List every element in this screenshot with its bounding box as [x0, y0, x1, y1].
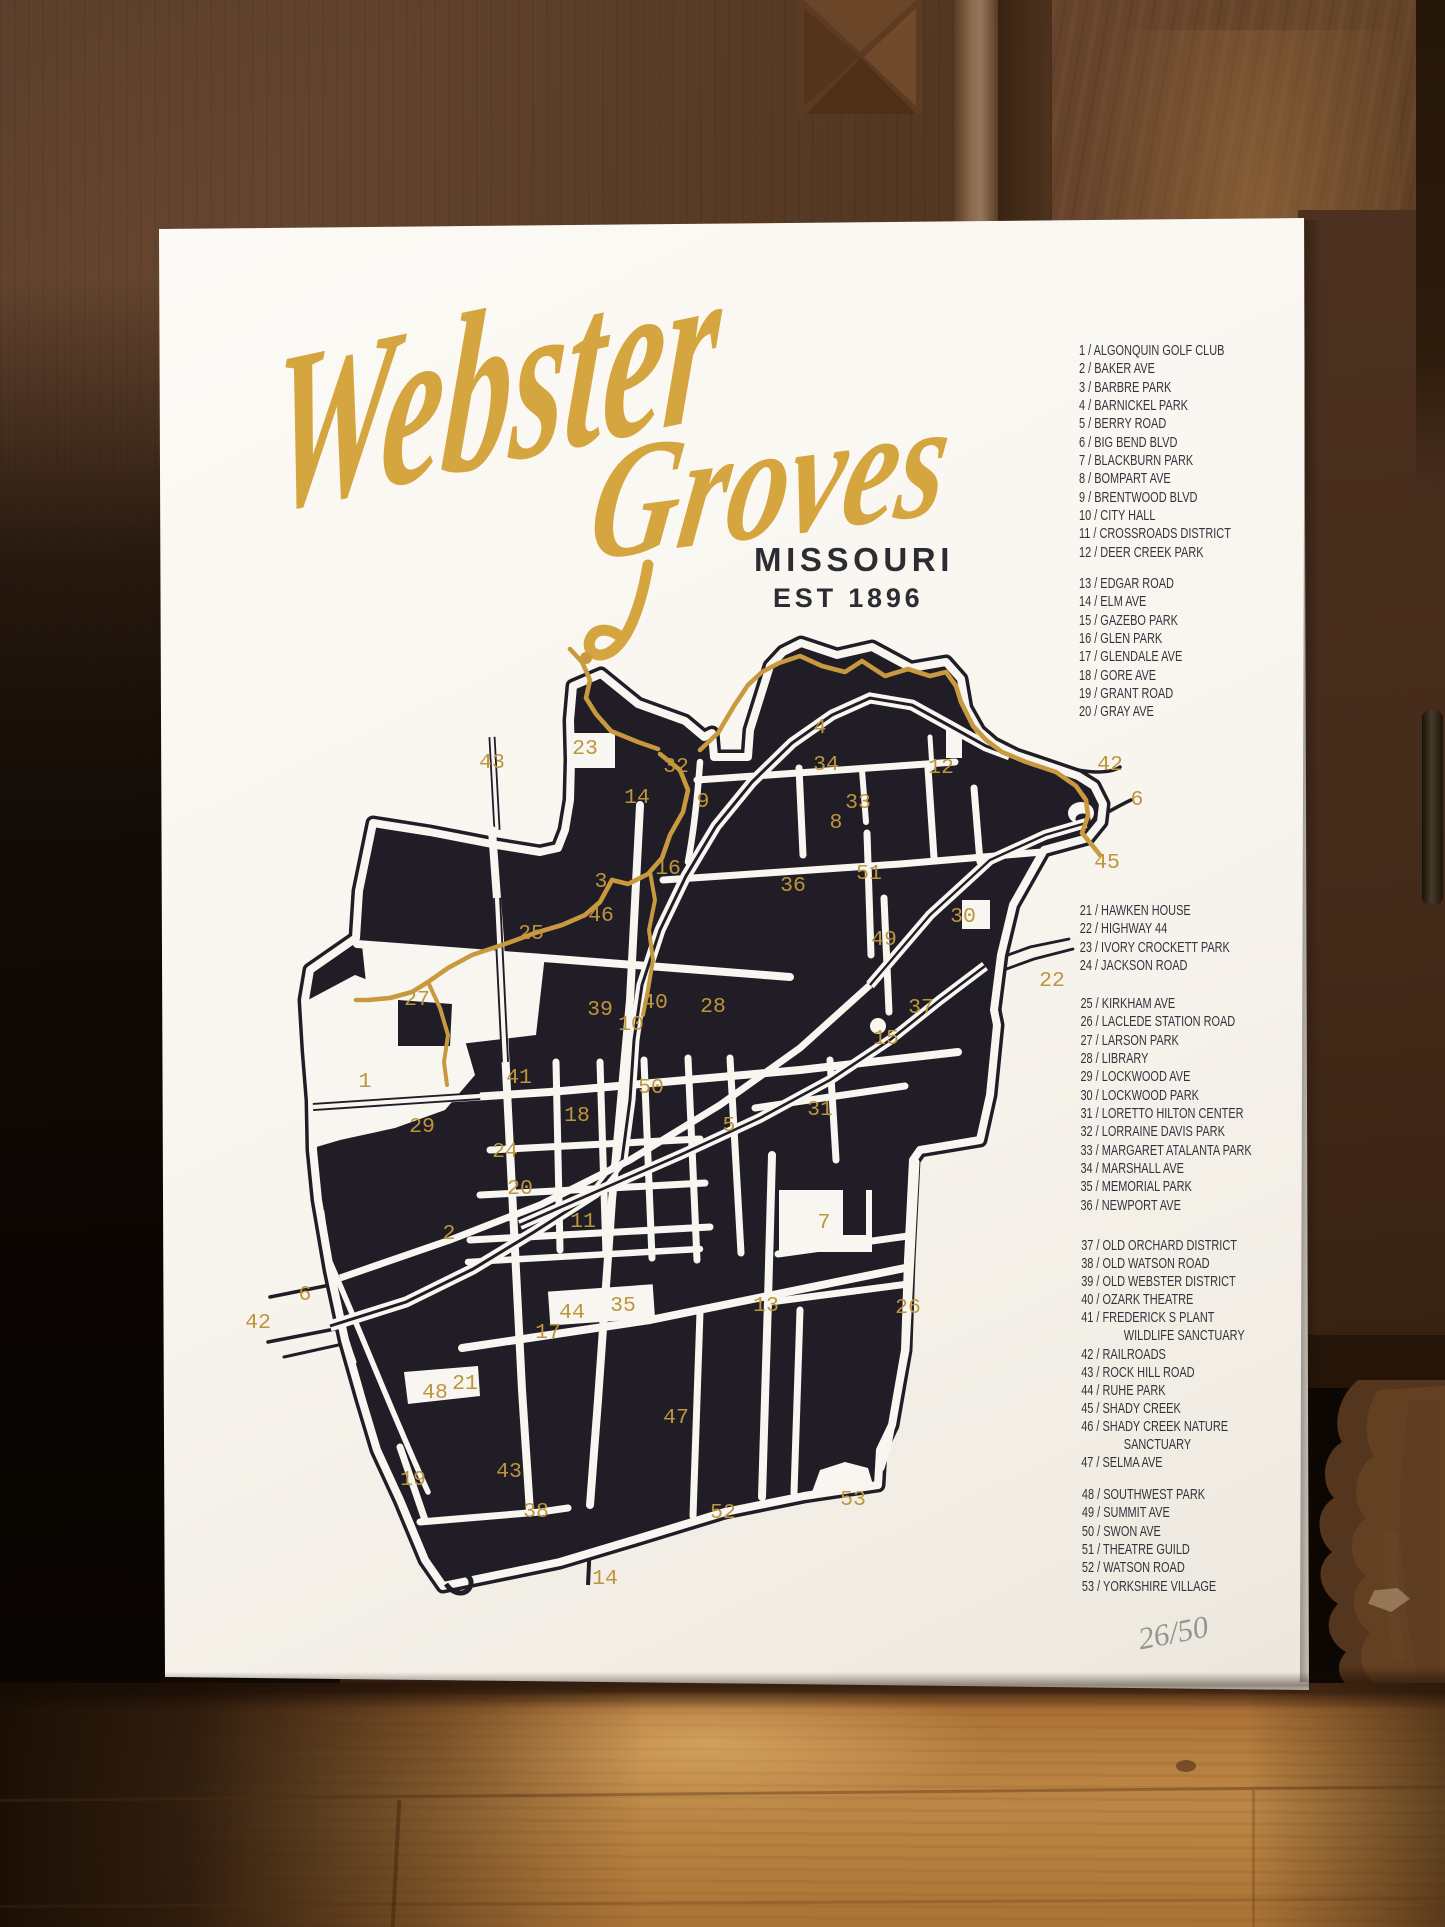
svg-text:11: 11 — [570, 1210, 596, 1234]
svg-text:34: 34 — [813, 753, 839, 777]
svg-text:42: 42 — [245, 1311, 271, 1335]
svg-text:12: 12 — [928, 756, 954, 780]
svg-text:41: 41 — [506, 1066, 532, 1090]
svg-text:52: 52 — [710, 1501, 736, 1525]
svg-text:38: 38 — [523, 1500, 549, 1524]
svg-text:29: 29 — [409, 1115, 435, 1139]
svg-text:53: 53 — [840, 1488, 866, 1512]
svg-text:22: 22 — [1039, 969, 1065, 993]
svg-text:39: 39 — [587, 998, 613, 1022]
svg-text:46: 46 — [588, 904, 614, 928]
svg-text:9: 9 — [697, 790, 710, 814]
svg-text:18: 18 — [564, 1104, 590, 1128]
svg-text:14: 14 — [624, 786, 650, 810]
svg-text:43: 43 — [479, 751, 505, 775]
svg-text:35: 35 — [610, 1294, 636, 1318]
svg-text:32: 32 — [663, 755, 689, 779]
svg-text:8: 8 — [830, 811, 843, 835]
svg-text:17: 17 — [535, 1321, 561, 1345]
svg-text:13: 13 — [753, 1294, 779, 1318]
svg-text:36: 36 — [780, 874, 806, 898]
svg-text:25: 25 — [518, 922, 544, 946]
svg-text:33: 33 — [845, 791, 871, 815]
svg-text:42: 42 — [1097, 753, 1123, 777]
svg-text:1: 1 — [359, 1070, 372, 1094]
svg-text:26: 26 — [895, 1296, 921, 1320]
svg-text:44: 44 — [559, 1301, 585, 1325]
svg-text:43: 43 — [496, 1460, 522, 1484]
svg-text:19: 19 — [400, 1468, 426, 1492]
svg-text:47: 47 — [663, 1406, 689, 1430]
svg-text:31: 31 — [807, 1098, 833, 1122]
svg-text:21: 21 — [452, 1372, 478, 1396]
svg-text:7: 7 — [818, 1211, 831, 1235]
svg-text:16: 16 — [655, 857, 681, 881]
svg-text:51: 51 — [856, 862, 882, 886]
svg-text:2: 2 — [443, 1222, 456, 1246]
svg-text:49: 49 — [871, 928, 897, 952]
svg-text:6: 6 — [1131, 788, 1144, 812]
svg-text:23: 23 — [572, 737, 598, 761]
svg-text:20: 20 — [507, 1177, 533, 1201]
svg-text:27: 27 — [404, 988, 430, 1012]
svg-text:37: 37 — [908, 996, 934, 1020]
svg-text:30: 30 — [950, 905, 976, 929]
svg-text:5: 5 — [723, 1114, 736, 1138]
svg-text:4: 4 — [814, 716, 827, 740]
svg-text:14: 14 — [592, 1567, 618, 1591]
svg-text:6: 6 — [299, 1283, 312, 1307]
svg-text:48: 48 — [422, 1381, 448, 1405]
svg-text:45: 45 — [1094, 851, 1120, 875]
svg-text:40: 40 — [642, 991, 668, 1015]
svg-text:28: 28 — [700, 995, 726, 1019]
svg-text:24: 24 — [492, 1140, 518, 1164]
svg-text:50: 50 — [638, 1076, 664, 1100]
svg-text:3: 3 — [595, 870, 608, 894]
svg-text:10: 10 — [618, 1013, 644, 1037]
svg-text:15: 15 — [873, 1027, 899, 1051]
